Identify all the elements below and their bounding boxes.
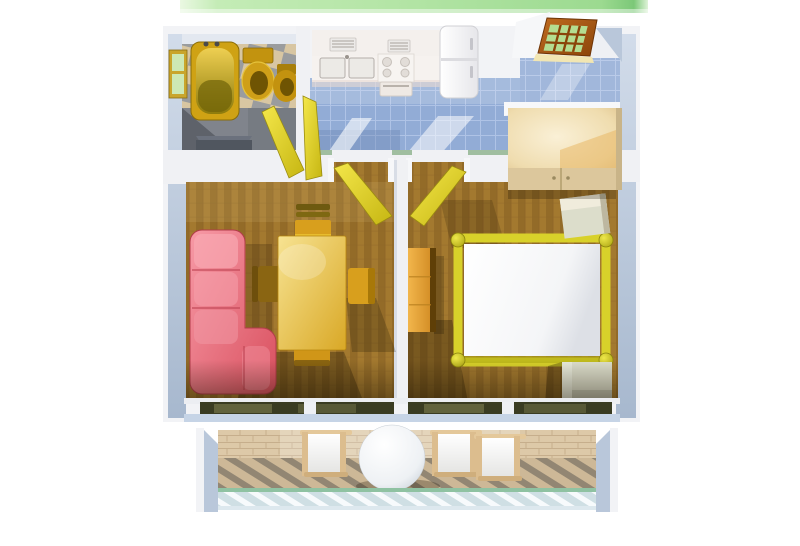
wardrobe-door-seam [560, 168, 562, 190]
window-pane-top [172, 54, 184, 71]
wardrobe-side [616, 108, 622, 190]
chair-m-seat [438, 434, 470, 474]
chair-l-rail-right [340, 432, 346, 476]
bathtub [191, 42, 239, 121]
living-window-reflection-1 [214, 404, 272, 413]
sofa-cushion-3 [194, 310, 238, 344]
living-room [186, 163, 396, 402]
living-window-mullion [304, 402, 316, 415]
door-jamb-4 [464, 158, 470, 182]
toilet [242, 48, 274, 100]
railing-top-rail [218, 488, 596, 492]
wardrobe-shadow [508, 190, 616, 199]
chair-r-rail-right [514, 436, 520, 480]
burner-3 [383, 69, 391, 77]
chair-l-rail-left [302, 432, 308, 476]
dresser-seam-1 [409, 276, 431, 278]
dining-chair-left [252, 266, 280, 302]
counter-front-shade [312, 80, 440, 87]
bed-knob-tr [599, 233, 613, 247]
chair-r-seat [482, 438, 514, 478]
chair-left-back [252, 266, 258, 302]
bidet-bowl-inner [280, 78, 294, 96]
balcony-chair-left [300, 430, 352, 477]
chair-r-rail-left [476, 436, 482, 480]
burner-1 [383, 58, 392, 67]
fridge-divider [441, 58, 477, 61]
sofa-cushion-2 [194, 272, 238, 306]
balcony-railing [218, 492, 596, 510]
chair-top-backbar-2 [296, 212, 330, 217]
bed-knob-tl [451, 233, 465, 247]
dresser [408, 248, 436, 332]
balcony-right-outer [610, 428, 618, 512]
balcony-chair-right [474, 434, 526, 481]
wardrobe-handle-1 [552, 176, 556, 180]
toilet-bowl-inner [250, 71, 268, 95]
bathtub-shadow [198, 80, 232, 112]
dining-chair-top [295, 204, 331, 240]
balcony [196, 425, 618, 512]
bedroom-window-reflection-1 [424, 404, 484, 413]
grass-fade [180, 9, 648, 14]
entry-door [512, 12, 597, 63]
fridge-handle-bottom [470, 66, 473, 78]
railing-bottom-edge [218, 506, 596, 510]
chair-l-bottom [304, 472, 348, 477]
mattress [464, 244, 600, 356]
bedroom-window-reflection-2 [524, 404, 586, 413]
chair-m-rail-left [432, 432, 438, 476]
chair-right-back [368, 268, 375, 304]
burner-4 [401, 69, 409, 77]
fridge-handle-top [470, 38, 473, 50]
sofa-cushion-1 [194, 234, 238, 268]
dining-chair-right [348, 268, 375, 304]
faucet [345, 55, 349, 59]
chair-m-bottom [434, 472, 478, 477]
chair-l-seat [308, 434, 340, 474]
balcony-right-face [596, 430, 610, 512]
stove [378, 54, 414, 96]
window-sill [184, 414, 620, 422]
oven-door [380, 82, 412, 96]
bedroom [408, 166, 618, 402]
fridge-body [440, 26, 478, 98]
sink-basin-right [349, 58, 374, 78]
hall-wardrobe [504, 102, 622, 199]
burner-2 [401, 58, 410, 67]
living-bedroom-wall-shade [394, 160, 397, 404]
refrigerator [440, 26, 478, 98]
dining-table [278, 236, 346, 350]
bathtub-tap-left [204, 42, 209, 47]
door-jamb-2 [388, 158, 394, 182]
living-vignette [186, 360, 394, 402]
sink-basin-left [320, 58, 345, 78]
chair-left-seat [258, 266, 280, 302]
apartment-render [0, 0, 800, 546]
window-pane-bottom [172, 74, 184, 94]
railing-slats [218, 492, 596, 506]
bedroom-vignette [408, 360, 618, 402]
chair-r-bottom [478, 476, 522, 481]
balcony-left-outer [196, 428, 204, 512]
balcony-round-table [359, 425, 425, 491]
door-jamb-1 [328, 158, 334, 182]
bathtub-tap-right [215, 42, 220, 47]
wardrobe-handle-2 [566, 176, 570, 180]
dresser-top [408, 248, 432, 332]
oven-handle [383, 85, 409, 87]
chair-top-backbar-1 [296, 204, 330, 210]
nightstand-top [560, 193, 611, 238]
bathroom-window [169, 50, 187, 98]
balcony-left-face [204, 430, 218, 512]
bedroom-window-mullion [502, 402, 514, 415]
stove-top [378, 54, 414, 82]
toilet-tank [243, 48, 273, 63]
dresser-seam-2 [409, 304, 431, 306]
baseboard-3 [468, 150, 510, 155]
table-highlight [278, 244, 326, 280]
dresser-side [430, 248, 436, 332]
double-bed [451, 233, 613, 367]
entry-door-glass [544, 25, 588, 53]
floorplan-svg [0, 0, 800, 546]
baseboard-2 [392, 150, 412, 155]
